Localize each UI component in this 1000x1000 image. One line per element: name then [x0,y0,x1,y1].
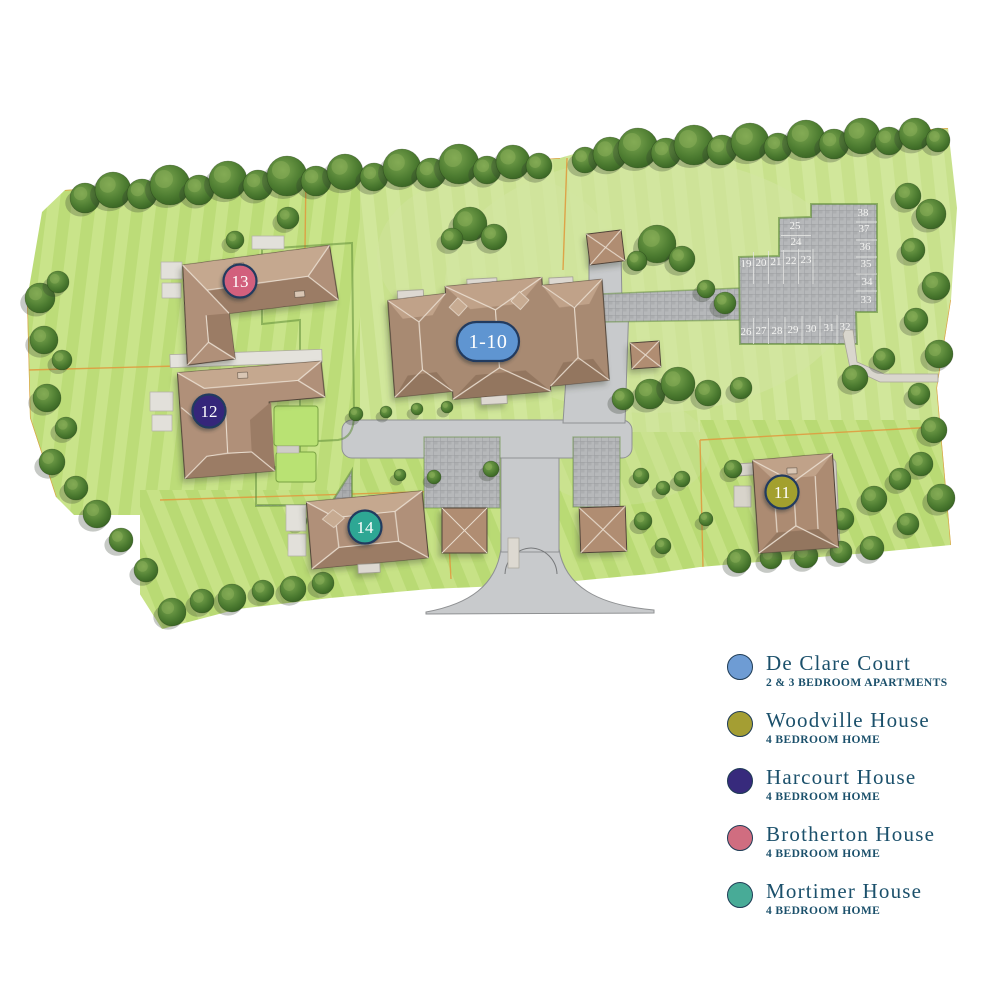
svg-text:14: 14 [357,518,375,537]
legend-item-de-clare-court: De Clare Court 2 & 3 BEDROOM APARTMENTS [727,652,999,689]
svg-text:36: 36 [860,241,872,253]
svg-text:23: 23 [801,254,813,266]
legend-title-brotherton-house: Brotherton House [766,823,935,845]
legend-title-woodville-house: Woodville House [766,709,930,731]
marker-woodville-house[interactable]: 11 [766,476,799,509]
legend-swatch-brotherton-house [727,825,753,851]
svg-text:31: 31 [824,322,835,334]
svg-text:33: 33 [861,294,873,306]
svg-text:25: 25 [790,220,802,232]
legend-subtitle-woodville-house: 4 BEDROOM HOME [766,734,930,746]
building-woodville-house [752,453,838,553]
svg-text:20: 20 [756,257,768,269]
legend-subtitle-harcourt-house: 4 BEDROOM HOME [766,791,916,803]
legend-swatch-harcourt-house [727,768,753,794]
legend-swatch-mortimer-house [727,882,753,908]
svg-text:27: 27 [756,325,768,337]
svg-text:11: 11 [774,483,790,502]
marker-de-clare-court[interactable]: 1-10 [457,322,519,361]
svg-text:35: 35 [861,258,873,270]
legend-subtitle-mortimer-house: 4 BEDROOM HOME [766,905,922,917]
legend-subtitle-de-clare-court: 2 & 3 BEDROOM APARTMENTS [766,677,948,689]
legend-item-brotherton-house: Brotherton House 4 BEDROOM HOME [727,823,999,860]
svg-text:22: 22 [786,255,797,267]
legend-swatch-de-clare-court [727,654,753,680]
svg-text:19: 19 [741,258,753,270]
site-plan-page: 19 20 21 22 23 24 25 26 27 28 29 30 31 3… [0,0,1000,1000]
svg-text:1-10: 1-10 [469,331,508,353]
svg-text:26: 26 [741,326,753,338]
legend-swatch-woodville-house [727,711,753,737]
svg-text:13: 13 [232,272,249,291]
garden-patches [274,406,318,482]
marker-harcourt-house[interactable]: 12 [193,395,226,428]
marker-brotherton-house[interactable]: 13 [224,265,257,298]
front-court-east [573,437,620,507]
svg-text:24: 24 [791,236,803,248]
svg-text:29: 29 [788,324,800,336]
legend-title-de-clare-court: De Clare Court [766,652,948,674]
svg-text:30: 30 [806,323,818,335]
legend-title-harcourt-house: Harcourt House [766,766,916,788]
marker-mortimer-house[interactable]: 14 [349,511,382,544]
svg-text:21: 21 [771,256,782,268]
svg-text:34: 34 [862,276,874,288]
svg-text:28: 28 [772,325,784,337]
legend-subtitle-brotherton-house: 4 BEDROOM HOME [766,848,935,860]
svg-text:38: 38 [858,207,870,219]
legend: De Clare Court 2 & 3 BEDROOM APARTMENTS … [727,652,999,937]
legend-item-harcourt-house: Harcourt House 4 BEDROOM HOME [727,766,999,803]
legend-title-mortimer-house: Mortimer House [766,880,922,902]
svg-text:32: 32 [840,321,851,333]
legend-item-mortimer-house: Mortimer House 4 BEDROOM HOME [727,880,999,917]
svg-text:37: 37 [859,223,871,235]
svg-text:12: 12 [201,402,218,421]
legend-item-woodville-house: Woodville House 4 BEDROOM HOME [727,709,999,746]
